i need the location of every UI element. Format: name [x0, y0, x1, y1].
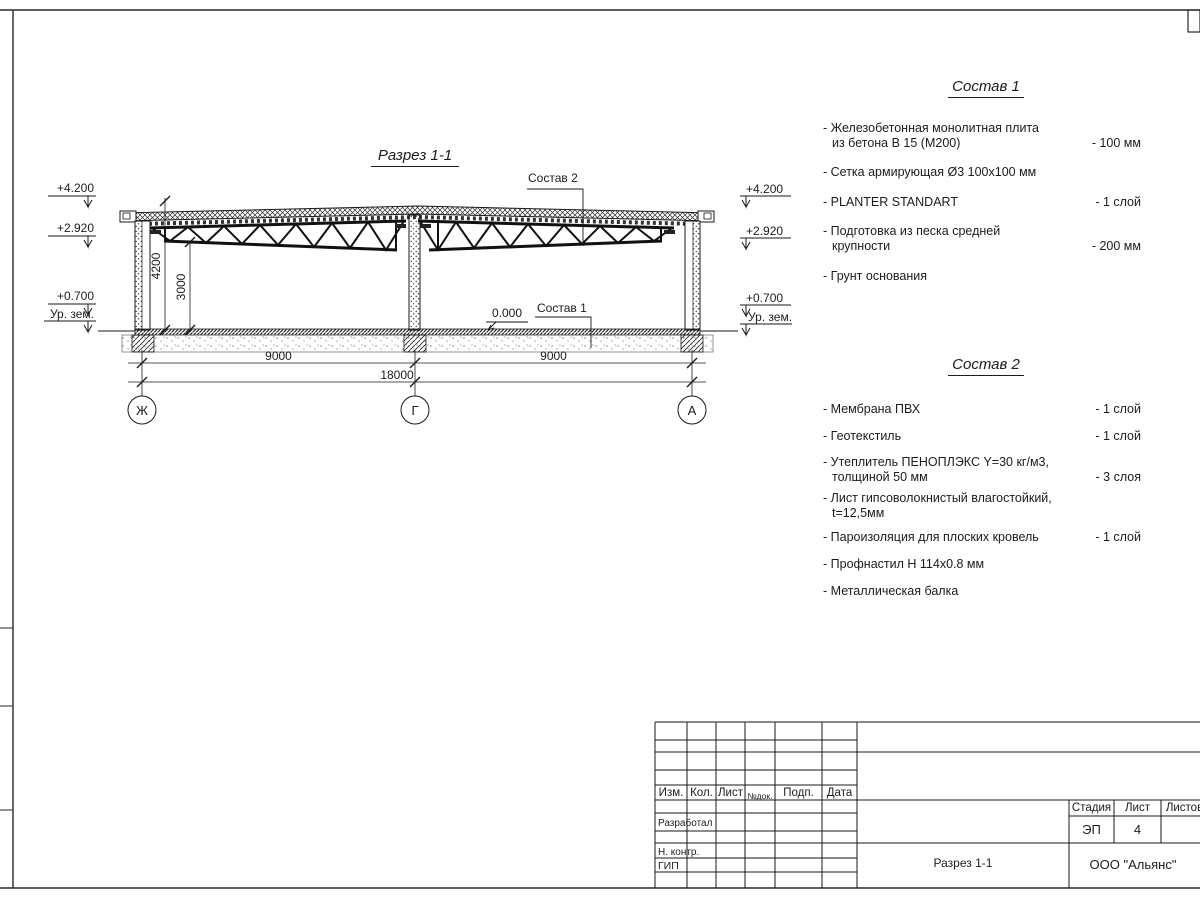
tb-sheet-label: Лист — [1114, 802, 1161, 815]
elevation-left-roof: +4.200 — [42, 181, 94, 195]
item-line: - Геотекстиль — [823, 429, 1141, 444]
item-value: - 3 слоя — [1096, 470, 1141, 485]
sostav1-item: - Подготовка из песка средней крупности … — [823, 224, 1141, 254]
dim-total: 18000 — [371, 368, 423, 382]
item-value: - 200 мм — [1092, 239, 1141, 254]
tb-col-kol: Кол. — [687, 787, 716, 800]
sostav2-item: - Пароизоляция для плоских кровель - 1 с… — [823, 530, 1141, 545]
elevation-left-truss: +2.920 — [42, 221, 94, 235]
item-line: - Железобетонная монолитная плита — [823, 121, 1141, 136]
tb-col-podp: Подп. — [775, 787, 822, 800]
tb-company: ООО "Альянс" — [1069, 858, 1197, 872]
dim-height-roof: 4200 — [149, 248, 163, 284]
tb-col-izm: Изм. — [655, 787, 687, 800]
sostav1-ref-label: Состав 1 — [537, 301, 587, 315]
item-line: - Сетка армирующая Ø3 100х100 мм — [823, 165, 1141, 180]
tb-sheets-label: Листов — [1161, 802, 1200, 815]
sostav1-item: - Железобетонная монолитная плита из бет… — [823, 121, 1141, 151]
elevation-right-roof: +4.200 — [746, 182, 783, 196]
truss-left — [150, 221, 406, 250]
item-value: - 100 мм — [1092, 136, 1141, 151]
item-value: - 1 слой — [1095, 429, 1141, 444]
sostav2-item: - Геотекстиль - 1 слой — [823, 429, 1141, 444]
elevation-left-mid: +0.700 — [42, 289, 94, 303]
sostav2-item: - Металлическая балка — [823, 584, 1141, 599]
sostav2-item: - Мембрана ПВХ - 1 слой — [823, 402, 1141, 417]
sostav1-item: - PLANTER STANDART - 1 слой — [823, 195, 1141, 210]
tb-stage-label: Стадия — [1069, 802, 1114, 815]
item-line: - Пароизоляция для плоских кровель — [823, 530, 1141, 545]
floor-slab — [135, 329, 700, 335]
axis-letter-right: А — [688, 403, 697, 418]
item-line: - Мембрана ПВХ — [823, 402, 1141, 417]
item-line: - Подготовка из песка средней — [823, 224, 1141, 239]
tb-stage-value: ЭП — [1069, 823, 1114, 837]
tb-doc-name: Разрез 1-1 — [857, 856, 1069, 870]
walls — [135, 215, 700, 330]
axis-markers: Ж Г А — [128, 396, 706, 424]
item-line: - Грунт основания — [823, 269, 1141, 284]
footing-right — [681, 335, 703, 352]
axis-letter-center: Г — [411, 403, 418, 418]
tb-role-ncontr: Н. контр. — [658, 846, 699, 859]
tb-sheet-value: 4 — [1114, 823, 1161, 837]
elevation-left-ground: Ур. зем. — [42, 307, 94, 321]
tb-col-data: Дата — [822, 787, 857, 800]
elevation-right-truss: +2.920 — [746, 224, 783, 238]
item-value: - 1 слой — [1095, 402, 1141, 417]
item-line: - PLANTER STANDART — [823, 195, 1141, 210]
tb-col-list: Лист — [716, 787, 745, 800]
section-title: Разрез 1-1 — [371, 147, 459, 167]
dim-bay2: 9000 — [531, 349, 576, 363]
sostav2-item: - Утеплитель ПЕНОПЛЭКС Y=30 кг/м3, толщи… — [823, 455, 1141, 485]
truss-right — [418, 221, 674, 250]
sostav1-item: - Грунт основания — [823, 269, 1141, 284]
item-line: - Лист гипсоволокнистый влагостойкий, — [823, 491, 1141, 506]
tb-col-ndok: №док. — [745, 790, 775, 803]
foundation — [98, 329, 738, 352]
item-line: - Утеплитель ПЕНОПЛЭКС Y=30 кг/м3, — [823, 455, 1141, 470]
tb-role-developed: Разработал — [658, 817, 712, 830]
elevation-right-mid: +0.700 — [746, 291, 783, 305]
sostav2-item: - Лист гипсоволокнистый влагостойкий, t=… — [823, 491, 1141, 521]
sostav2-item: - Профнастил Н 114х0.8 мм — [823, 557, 1141, 572]
drawing-sheet: Ж Г А — [0, 0, 1200, 900]
dim-height-clear: 3000 — [174, 269, 188, 305]
zero-level-label: 0.000 — [492, 306, 522, 320]
item-value: - 1 слой — [1095, 530, 1141, 545]
dim-bay1: 9000 — [256, 349, 301, 363]
sostav2-ref-label: Состав 2 — [528, 171, 578, 185]
sostav1-item: - Сетка армирующая Ø3 100х100 мм — [823, 165, 1141, 180]
tb-role-gip: ГИП — [658, 860, 679, 873]
footing-center — [404, 335, 426, 352]
sostav1-title: Состав 1 — [948, 78, 1024, 98]
item-line: - Металлическая балка — [823, 584, 1141, 599]
wall-center — [409, 215, 420, 330]
footing-left — [132, 335, 154, 352]
item-line2: t=12,5мм — [832, 506, 1141, 521]
item-line: - Профнастил Н 114х0.8 мм — [823, 557, 1141, 572]
elevation-right-ground: Ур. зем. — [748, 310, 792, 324]
item-value: - 1 слой — [1095, 195, 1141, 210]
axis-letter-left: Ж — [136, 403, 148, 418]
sostav2-title: Состав 2 — [948, 356, 1024, 376]
